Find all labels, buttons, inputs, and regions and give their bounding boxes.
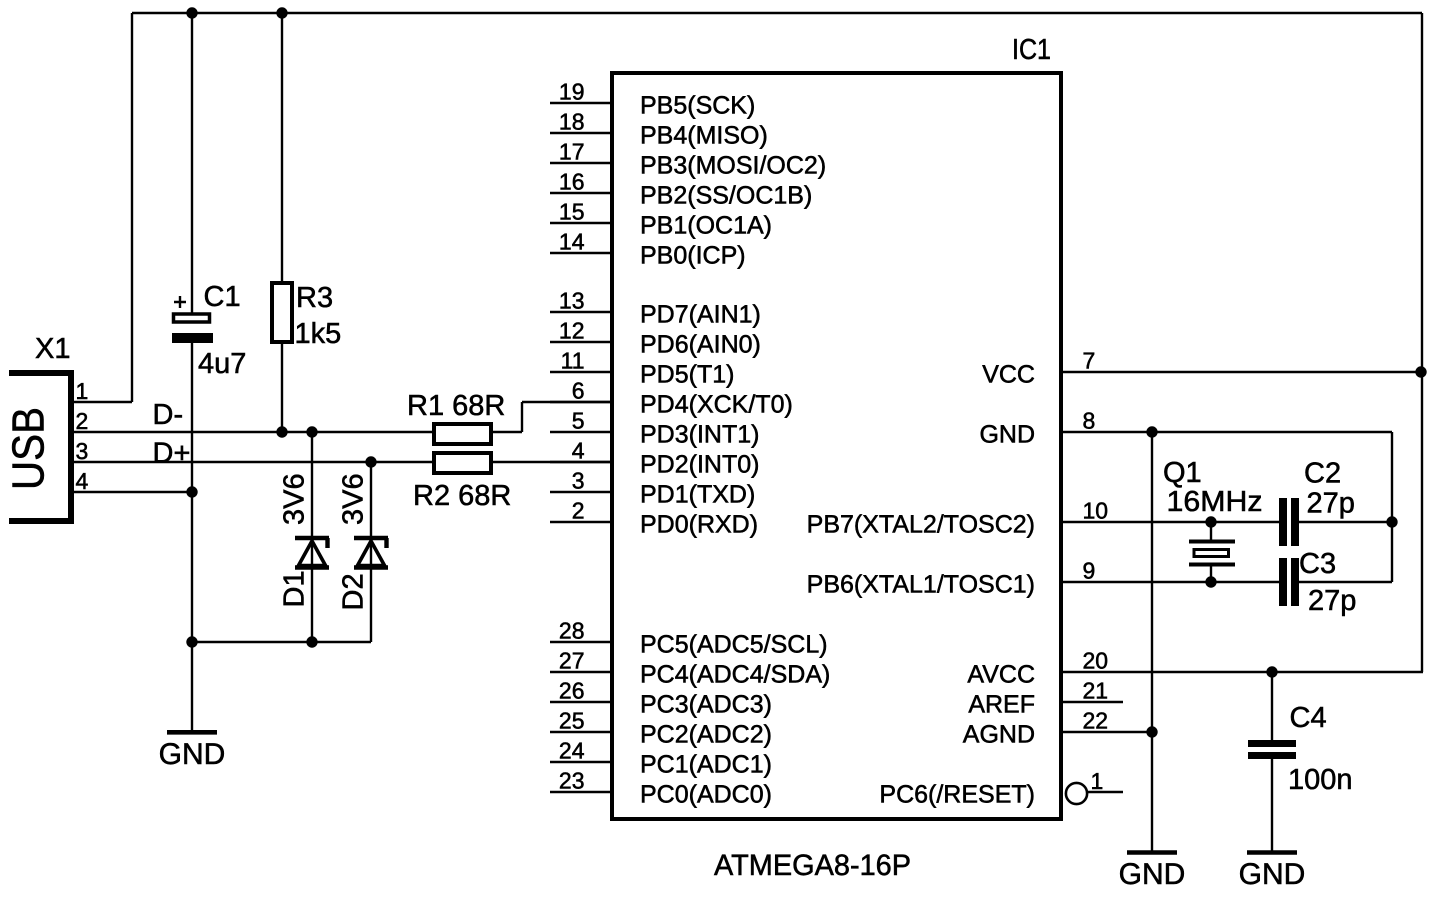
- svg-text:7: 7: [1083, 348, 1096, 374]
- svg-text:D1: D1: [279, 570, 311, 607]
- svg-text:PB3(MOSI/OC2): PB3(MOSI/OC2): [640, 152, 826, 180]
- svg-text:PC5(ADC5/SCL): PC5(ADC5/SCL): [640, 631, 828, 659]
- svg-text:PB0(ICP): PB0(ICP): [640, 242, 746, 270]
- svg-text:20: 20: [1083, 648, 1109, 674]
- svg-text:GND: GND: [1119, 858, 1186, 891]
- svg-text:3V6: 3V6: [338, 473, 370, 525]
- svg-text:100n: 100n: [1288, 764, 1353, 796]
- svg-text:GND: GND: [979, 421, 1035, 449]
- svg-text:PC0(ADC0): PC0(ADC0): [640, 781, 772, 809]
- svg-text:C4: C4: [1290, 702, 1327, 734]
- svg-text:PB2(SS/OC1B): PB2(SS/OC1B): [640, 182, 812, 210]
- svg-text:16: 16: [559, 169, 585, 195]
- svg-text:C1: C1: [204, 281, 241, 313]
- svg-text:4u7: 4u7: [198, 348, 246, 380]
- svg-text:8: 8: [1083, 408, 1096, 434]
- svg-text:PD7(AIN1): PD7(AIN1): [640, 301, 761, 329]
- svg-text:PB1(OC1A): PB1(OC1A): [640, 212, 772, 240]
- svg-text:21: 21: [1083, 678, 1109, 704]
- svg-text:3: 3: [572, 468, 585, 494]
- svg-text:19: 19: [559, 79, 585, 105]
- svg-text:17: 17: [559, 139, 585, 165]
- svg-text:C3: C3: [1299, 548, 1336, 580]
- svg-text:PB5(SCK): PB5(SCK): [640, 92, 755, 120]
- svg-text:PD2(INT0): PD2(INT0): [640, 451, 759, 479]
- svg-text:4: 4: [76, 468, 89, 494]
- svg-text:4: 4: [572, 438, 585, 464]
- svg-text:27p: 27p: [1308, 585, 1356, 617]
- svg-text:6: 6: [572, 378, 585, 404]
- svg-text:16MHz: 16MHz: [1167, 486, 1263, 518]
- svg-text:28: 28: [559, 618, 585, 644]
- svg-text:X1: X1: [35, 333, 70, 365]
- svg-text:22: 22: [1083, 708, 1109, 734]
- svg-text:PC1(ADC1): PC1(ADC1): [640, 751, 772, 779]
- svg-text:10: 10: [1083, 498, 1109, 524]
- svg-text:PD5(T1): PD5(T1): [640, 361, 734, 389]
- svg-text:12: 12: [559, 318, 585, 344]
- svg-text:USB: USB: [3, 407, 54, 490]
- svg-text:5: 5: [572, 408, 585, 434]
- svg-text:27p: 27p: [1307, 488, 1355, 520]
- svg-text:D-: D-: [153, 399, 184, 431]
- svg-text:2: 2: [76, 408, 89, 434]
- svg-text:PB7(XTAL2/TOSC2): PB7(XTAL2/TOSC2): [807, 511, 1035, 539]
- svg-text:2: 2: [572, 498, 585, 524]
- svg-text:GND: GND: [1239, 858, 1306, 891]
- svg-text:1: 1: [76, 378, 89, 404]
- svg-text:IC1: IC1: [1012, 34, 1051, 66]
- svg-text:Q1: Q1: [1163, 457, 1202, 489]
- svg-text:27: 27: [559, 648, 585, 674]
- svg-text:R2 68R: R2 68R: [413, 480, 511, 512]
- svg-text:AREF: AREF: [968, 691, 1035, 719]
- svg-text:AGND: AGND: [963, 721, 1035, 749]
- svg-text:PD0(RXD): PD0(RXD): [640, 511, 758, 539]
- svg-text:ATMEGA8-16P: ATMEGA8-16P: [714, 849, 911, 882]
- svg-text:24: 24: [559, 738, 585, 764]
- svg-text:PC4(ADC4/SDA): PC4(ADC4/SDA): [640, 661, 830, 689]
- svg-text:1: 1: [1091, 768, 1104, 794]
- svg-text:PD6(AIN0): PD6(AIN0): [640, 331, 761, 359]
- svg-text:3V6: 3V6: [279, 473, 311, 525]
- svg-text:PB6(XTAL1/TOSC1): PB6(XTAL1/TOSC1): [807, 571, 1035, 599]
- svg-text:26: 26: [559, 678, 585, 704]
- svg-text:VCC: VCC: [982, 361, 1035, 389]
- svg-text:GND: GND: [159, 738, 226, 771]
- svg-text:1k5: 1k5: [295, 318, 342, 350]
- svg-text:D2: D2: [338, 573, 370, 610]
- svg-text:D+: D+: [153, 438, 191, 470]
- svg-text:PD1(TXD): PD1(TXD): [640, 481, 755, 509]
- svg-text:PC2(ADC2): PC2(ADC2): [640, 721, 772, 749]
- svg-text:PD3(INT1): PD3(INT1): [640, 421, 759, 449]
- svg-text:9: 9: [1083, 558, 1096, 584]
- svg-text:C2: C2: [1304, 458, 1341, 490]
- svg-text:23: 23: [559, 768, 585, 794]
- svg-text:14: 14: [559, 229, 585, 255]
- svg-text:18: 18: [559, 109, 585, 135]
- svg-text:PB4(MISO): PB4(MISO): [640, 122, 768, 150]
- svg-text:R3: R3: [296, 282, 333, 314]
- svg-text:PD4(XCK/T0): PD4(XCK/T0): [640, 391, 793, 419]
- svg-text:11: 11: [561, 348, 585, 374]
- svg-text:R1 68R: R1 68R: [407, 390, 505, 422]
- svg-text:3: 3: [76, 438, 89, 464]
- svg-text:13: 13: [559, 288, 585, 314]
- svg-text:PC6(/RESET): PC6(/RESET): [879, 781, 1035, 809]
- svg-text:25: 25: [559, 708, 585, 734]
- svg-text:PC3(ADC3): PC3(ADC3): [640, 691, 772, 719]
- svg-text:15: 15: [559, 199, 585, 225]
- svg-text:AVCC: AVCC: [967, 661, 1035, 689]
